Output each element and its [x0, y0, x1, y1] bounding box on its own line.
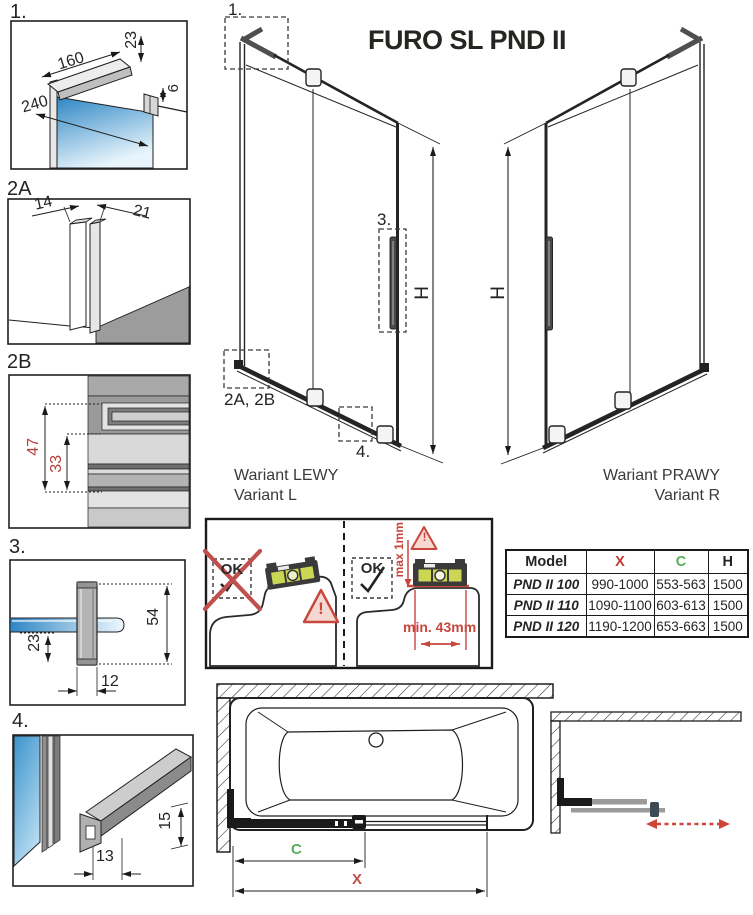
plan-x-label: X — [352, 872, 362, 887]
cell-model: PND II 100 — [506, 574, 586, 595]
cell-c: 553-563 — [654, 574, 708, 595]
col-h: H — [708, 550, 748, 574]
marker-detail4: 4. — [356, 443, 370, 460]
cell-model: PND II 120 — [506, 616, 586, 638]
dim-23: 23 — [124, 31, 140, 49]
col-c: C — [654, 550, 708, 574]
caption-left-en: Variant L — [234, 486, 297, 505]
detail-3-drawing — [10, 560, 185, 705]
detail-1-label: 1. — [10, 2, 27, 22]
plan-c-label: C — [291, 842, 302, 857]
cell-c: 653-663 — [654, 616, 708, 638]
dim-33: 33 — [49, 455, 65, 473]
slide-direction-drawing — [551, 712, 741, 833]
ok-label: OK — [354, 561, 390, 576]
page-title: FURO SL PND II — [368, 27, 566, 54]
caption-left-pl: Wariant LEWY — [234, 466, 338, 485]
cell-x: 990-1000 — [586, 574, 654, 595]
technical-sheet: 1. 160 23 240 6 2A 14 21 2B 47 33 3. 54 … — [0, 0, 753, 915]
cell-x: 1090-1100 — [586, 595, 654, 616]
dim-54: 54 — [146, 608, 162, 626]
caption-right-en: Variant R — [600, 486, 720, 505]
col-model: Model — [506, 550, 586, 574]
not-ok-label: OK — [214, 562, 250, 577]
detail-2b-label: 2B — [7, 352, 31, 372]
cell-h: 1500 — [708, 574, 748, 595]
warning-exclamation-right: ! — [419, 533, 430, 545]
cell-c: 603-613 — [654, 595, 708, 616]
marker-detail2ab: 2A, 2B — [224, 391, 275, 408]
max-gap-label: max 1mm — [393, 522, 405, 577]
leveling-instructions-drawing — [205, 519, 492, 668]
cell-h: 1500 — [708, 616, 748, 638]
table-row: PND II 100 990-1000 553-563 1500 — [506, 574, 748, 595]
dim-23b: 23 — [27, 634, 43, 652]
dim-13: 13 — [96, 849, 114, 865]
table-header-row: Model X C H — [506, 550, 748, 574]
detail-2a-drawing — [8, 199, 190, 344]
height-label-left: H — [413, 286, 432, 300]
col-x: X — [586, 550, 654, 574]
spirit-level-flat-icon — [413, 559, 467, 586]
caption-right-pl: Wariant PRAWY — [600, 466, 720, 485]
cell-h: 1500 — [708, 595, 748, 616]
dim-6: 6 — [166, 84, 181, 92]
line-art — [0, 0, 753, 915]
cell-x: 1190-1200 — [586, 616, 654, 638]
cell-model: PND II 110 — [506, 595, 586, 616]
dim-12: 12 — [101, 674, 119, 690]
elevation-right-drawing — [501, 29, 709, 464]
detail-3-label: 3. — [9, 537, 26, 557]
dim-47: 47 — [26, 438, 42, 456]
min-distance-label: min. 43mm — [403, 620, 476, 634]
marker-detail3: 3. — [377, 211, 391, 228]
warning-exclamation-left: ! — [315, 600, 327, 617]
spec-table: Model X C H PND II 100 990-1000 553-563 … — [505, 549, 749, 638]
table-row: PND II 110 1090-1100 603-613 1500 — [506, 595, 748, 616]
bathtub-plan-drawing — [217, 684, 553, 897]
detail-4-label: 4. — [12, 711, 29, 731]
height-label-right: H — [489, 286, 508, 300]
dim-15: 15 — [158, 812, 174, 830]
table-row: PND II 120 1190-1200 653-663 1500 — [506, 616, 748, 638]
marker-detail1: 1. — [228, 1, 242, 18]
detail-2a-label: 2A — [7, 179, 31, 199]
